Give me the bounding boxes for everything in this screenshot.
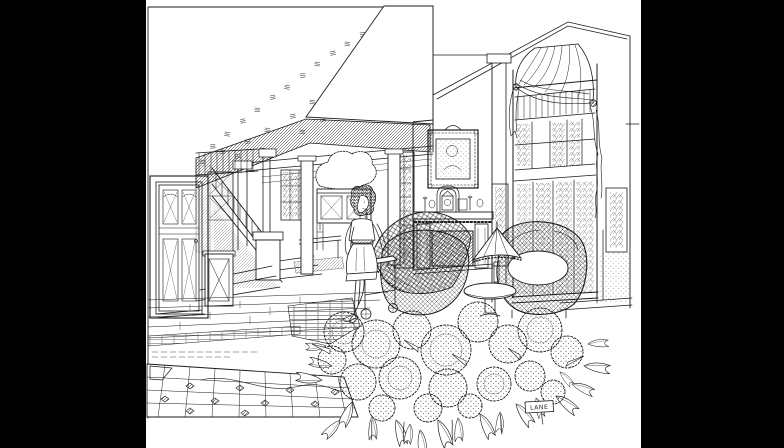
right-matte-bar xyxy=(641,0,784,448)
left-matte-bar xyxy=(0,0,146,448)
interior-line-drawing: LANE xyxy=(0,0,784,448)
matted-artwork: LANE xyxy=(0,0,784,448)
wall-speckle xyxy=(600,252,630,302)
wicker-armchair-right xyxy=(497,222,587,318)
signature-text: LANE xyxy=(530,404,549,412)
skirt xyxy=(346,244,377,274)
newel-cap xyxy=(253,232,283,240)
belt xyxy=(352,240,373,244)
artist-signature: LANE xyxy=(525,401,554,413)
pilaster-cap xyxy=(487,54,511,63)
newel-post xyxy=(256,240,280,280)
